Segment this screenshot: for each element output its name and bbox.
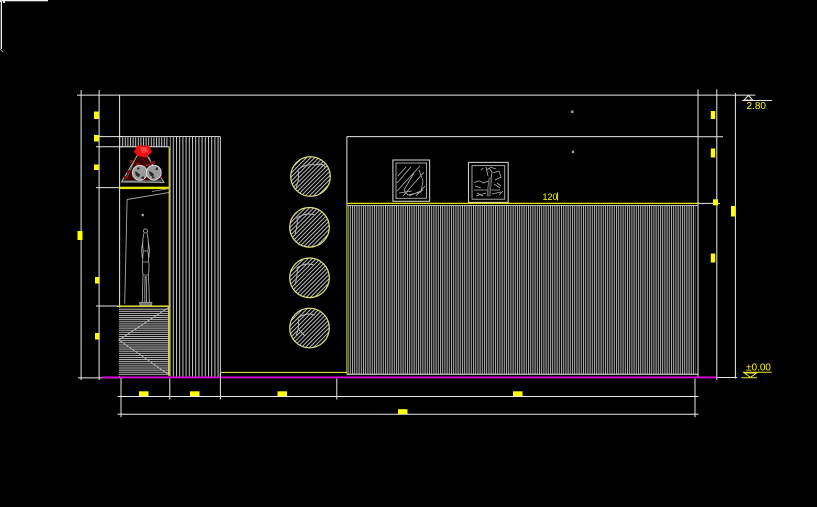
svg-text:2.80: 2.80 xyxy=(747,101,767,112)
svg-text:120: 120 xyxy=(543,192,558,202)
